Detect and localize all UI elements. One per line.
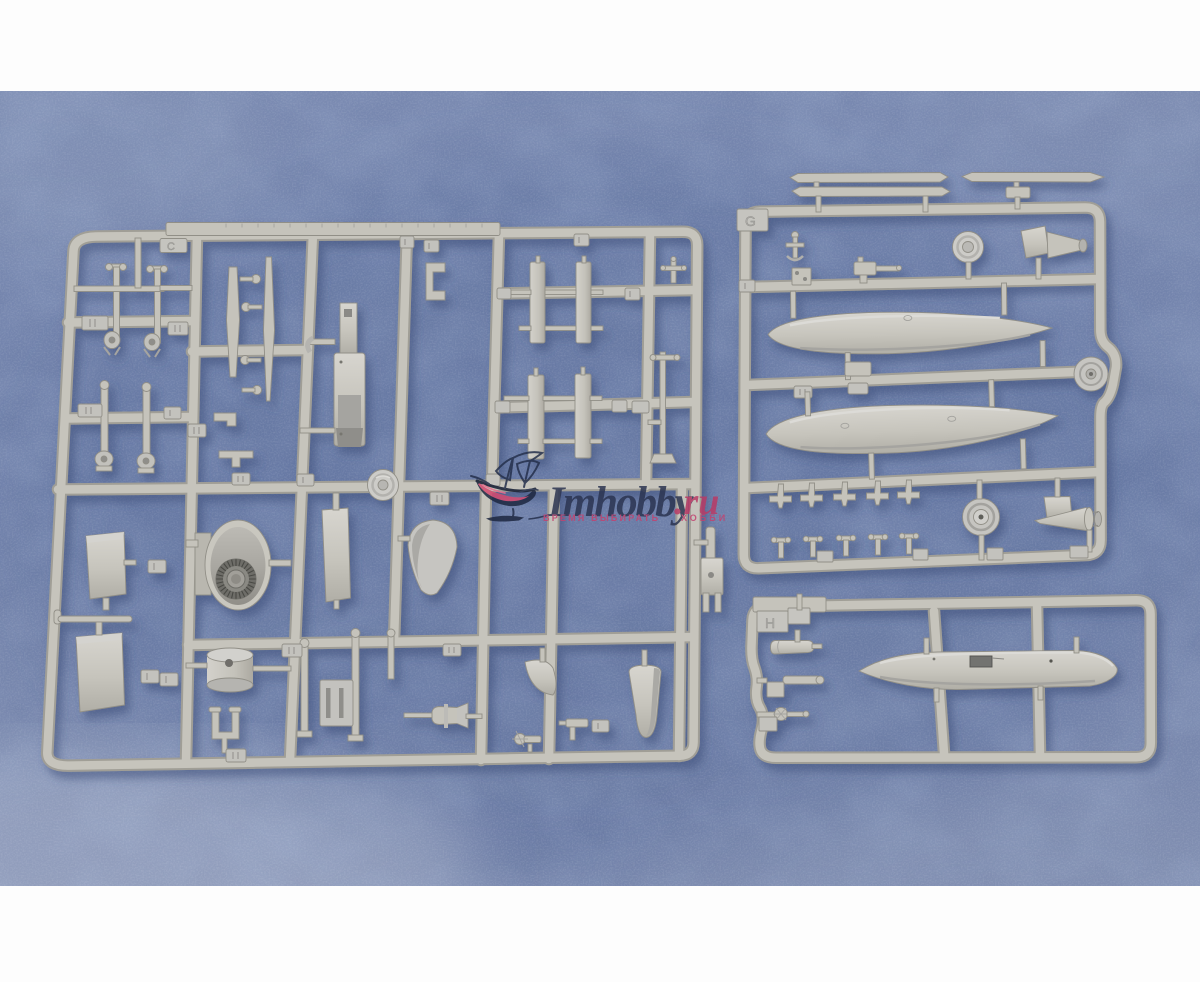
svg-text:ВРЕМЯ ВЫБИРАТЬ: ВРЕМЯ ВЫБИРАТЬ: [543, 513, 660, 523]
svg-text:ХОББИ: ХОББИ: [681, 513, 728, 523]
svg-text:H: H: [765, 615, 775, 631]
svg-text:C: C: [167, 241, 175, 253]
svg-text:G: G: [745, 213, 756, 229]
